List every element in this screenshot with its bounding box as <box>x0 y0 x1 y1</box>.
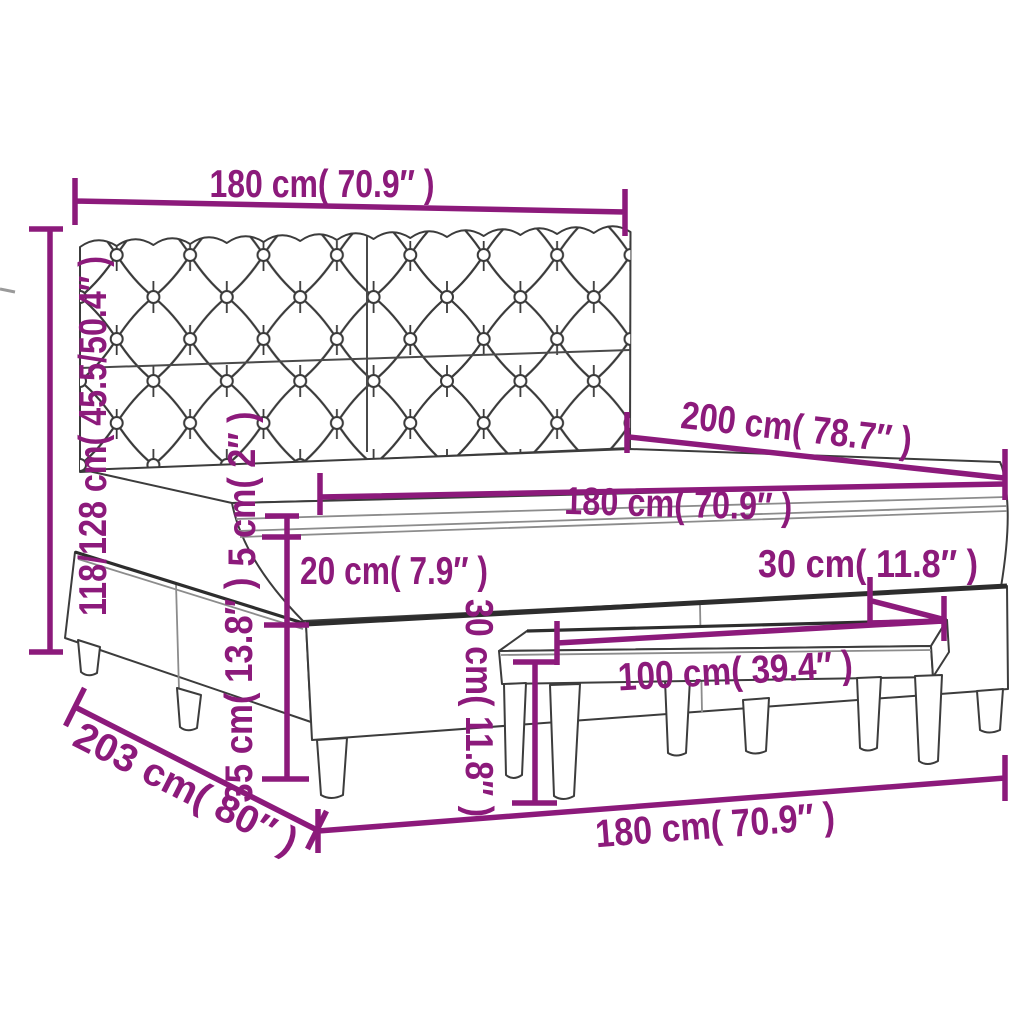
headboard-tufting <box>78 213 634 475</box>
bed-leg <box>743 698 769 754</box>
bench-leg <box>857 677 881 751</box>
dim-frame-height-label: 20 cm( 7.9″ ) <box>300 550 488 593</box>
dimension-bed-width: 180 cm( 70.9″ ) <box>318 755 1005 856</box>
diagram-canvas: 180 cm( 70.9″ ) 118/128 cm( 45.5/50.4″ )… <box>0 0 1024 1024</box>
bed-leg <box>317 738 347 798</box>
dim-mattress-width-label: 180 cm( 70.9″ ) <box>564 480 793 529</box>
dim-line <box>29 229 63 652</box>
stray-edge-mark <box>0 289 15 292</box>
dimension-headboard-width: 180 cm( 70.9″ ) <box>75 163 625 236</box>
dim-bed-width-label: 180 cm( 70.9″ ) <box>594 795 837 856</box>
bed-line-art <box>0 213 1008 799</box>
dim-headboard-width-label: 180 cm( 70.9″ ) <box>210 163 435 206</box>
headboard <box>78 213 634 475</box>
dim-leg-height-label: 35 cm( 13.8″ ) <box>218 578 261 803</box>
dim-headboard-height-label: 118/128 cm( 45.5/50.4″ ) <box>72 256 115 616</box>
bed-leg <box>78 640 100 675</box>
bed-dimension-diagram: 180 cm( 70.9″ ) 118/128 cm( 45.5/50.4″ )… <box>0 0 1024 1024</box>
dim-topper-thickness-label: 5 cm( 2″ ) <box>221 412 264 567</box>
dim-bench-height-label: 30 cm( 11.8″ ) <box>457 599 500 817</box>
dim-bed-base-length-label: 203 cm( 80″ ) <box>67 714 305 863</box>
bench-leg <box>550 684 580 799</box>
bed-leg <box>177 688 201 730</box>
bed-leg <box>977 689 1003 733</box>
dimension-headboard-height: 118/128 cm( 45.5/50.4″ ) <box>29 229 115 652</box>
dim-bench-seat-depth-label: 30 cm( 11.8″ ) <box>758 543 978 586</box>
bench-leg <box>915 675 942 764</box>
bench-leg <box>504 683 526 778</box>
